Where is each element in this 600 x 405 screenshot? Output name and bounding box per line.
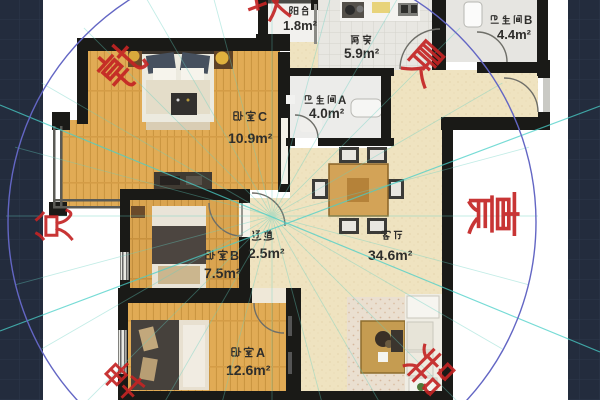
svg-text:5.9m²: 5.9m² (344, 46, 380, 61)
svg-text:1.8m²: 1.8m² (283, 18, 318, 33)
svg-text:B: B (524, 15, 532, 27)
svg-text:34.6m²: 34.6m² (368, 247, 413, 263)
svg-text:4.0m²: 4.0m² (309, 106, 345, 121)
svg-text:A: A (256, 346, 265, 360)
svg-text:4.4m²: 4.4m² (497, 27, 532, 42)
svg-text:10.9m²: 10.9m² (228, 130, 273, 146)
svg-text:B: B (230, 249, 239, 263)
svg-text:C: C (258, 110, 267, 124)
